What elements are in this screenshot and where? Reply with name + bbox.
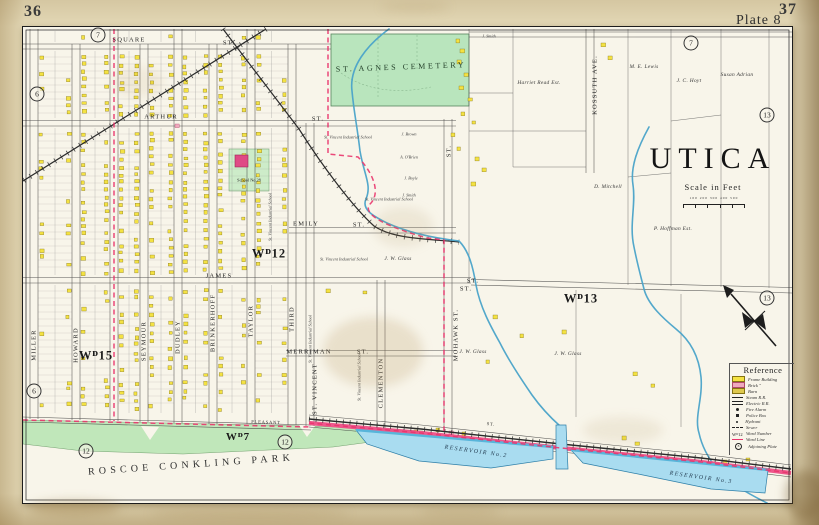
building xyxy=(256,189,259,193)
building xyxy=(218,193,222,196)
building xyxy=(40,254,43,258)
building xyxy=(256,102,260,105)
building xyxy=(82,231,86,235)
building xyxy=(475,157,479,161)
building xyxy=(169,391,172,394)
building xyxy=(282,79,286,83)
building xyxy=(39,133,42,136)
building xyxy=(242,217,245,220)
building xyxy=(149,155,153,158)
building xyxy=(468,98,472,101)
building xyxy=(218,153,222,156)
building xyxy=(135,64,139,68)
building xyxy=(67,289,71,292)
building xyxy=(169,104,172,107)
building xyxy=(219,139,223,143)
building xyxy=(257,150,262,153)
building xyxy=(169,171,173,175)
building xyxy=(184,365,188,369)
building xyxy=(169,205,173,208)
building xyxy=(66,159,70,163)
building xyxy=(81,218,85,221)
building xyxy=(150,365,153,368)
building xyxy=(67,382,72,385)
building xyxy=(81,357,85,360)
building xyxy=(183,381,187,384)
building xyxy=(135,336,139,340)
building xyxy=(184,356,187,360)
building xyxy=(242,299,246,302)
building xyxy=(149,64,153,67)
building xyxy=(242,258,246,262)
building xyxy=(81,257,86,261)
building xyxy=(184,229,187,232)
building xyxy=(204,331,207,335)
building xyxy=(257,212,260,215)
building xyxy=(183,172,186,175)
building xyxy=(219,373,223,377)
building xyxy=(66,232,70,235)
building xyxy=(67,387,70,390)
building xyxy=(105,232,108,235)
building xyxy=(119,174,123,177)
building xyxy=(218,187,222,190)
building xyxy=(105,141,108,145)
building xyxy=(119,105,123,108)
creek-east xyxy=(632,127,767,503)
building xyxy=(169,35,173,38)
building xyxy=(119,142,123,145)
map-linework xyxy=(23,27,792,503)
building xyxy=(242,266,246,270)
building xyxy=(40,232,44,235)
building xyxy=(119,296,123,299)
building xyxy=(184,203,188,206)
page-number-right: 37 xyxy=(779,1,797,19)
building xyxy=(169,238,172,241)
building xyxy=(459,86,464,90)
building xyxy=(134,245,138,248)
building xyxy=(219,63,222,66)
building xyxy=(119,112,123,116)
building xyxy=(134,353,138,356)
building xyxy=(451,133,455,137)
building xyxy=(282,102,285,105)
building xyxy=(150,132,153,136)
building xyxy=(135,260,139,263)
building xyxy=(169,382,172,385)
building xyxy=(283,358,287,362)
building xyxy=(135,359,138,362)
building xyxy=(203,132,206,135)
building xyxy=(204,142,208,146)
lot-lines xyxy=(38,31,288,413)
building xyxy=(283,381,286,385)
building xyxy=(218,409,221,412)
building xyxy=(204,194,209,198)
building xyxy=(150,106,154,110)
building xyxy=(219,70,223,73)
building xyxy=(82,55,86,58)
building xyxy=(81,395,84,399)
building xyxy=(283,189,287,193)
building xyxy=(203,89,207,92)
building xyxy=(184,252,188,256)
building xyxy=(134,313,138,316)
building xyxy=(105,55,108,58)
building xyxy=(134,213,138,216)
building xyxy=(40,56,44,59)
building xyxy=(135,295,138,299)
building xyxy=(183,260,188,264)
building xyxy=(204,210,207,214)
building xyxy=(134,400,138,403)
building xyxy=(168,197,172,200)
building xyxy=(119,179,123,183)
building xyxy=(105,262,109,265)
building xyxy=(257,341,261,344)
building xyxy=(119,64,123,68)
building xyxy=(242,192,246,196)
building xyxy=(242,108,246,112)
building xyxy=(282,342,286,345)
building xyxy=(257,222,261,225)
building xyxy=(219,179,223,183)
building xyxy=(219,86,223,89)
building xyxy=(150,271,155,275)
building xyxy=(256,311,260,314)
building xyxy=(104,70,108,74)
building xyxy=(184,269,188,273)
building xyxy=(256,262,260,265)
building xyxy=(135,173,138,176)
building xyxy=(169,297,172,300)
building xyxy=(168,366,172,370)
building xyxy=(257,107,261,110)
building xyxy=(184,220,188,223)
building xyxy=(120,344,124,347)
building xyxy=(81,330,85,333)
building xyxy=(82,133,86,136)
building xyxy=(150,205,154,209)
building xyxy=(651,384,655,387)
building xyxy=(119,251,122,254)
building xyxy=(104,203,108,207)
building xyxy=(169,132,173,136)
building xyxy=(81,181,84,185)
building xyxy=(242,185,245,188)
building xyxy=(135,203,140,206)
building xyxy=(184,88,188,92)
building xyxy=(241,199,245,202)
building xyxy=(105,240,109,243)
building xyxy=(82,102,87,105)
building xyxy=(241,233,245,236)
page-edge-stain xyxy=(420,505,500,519)
building xyxy=(150,374,153,377)
building xyxy=(135,269,139,273)
building xyxy=(184,245,188,248)
building xyxy=(184,106,188,109)
building xyxy=(241,364,244,368)
building xyxy=(82,307,87,311)
building xyxy=(66,97,71,101)
building xyxy=(635,442,640,445)
building xyxy=(256,255,259,258)
building xyxy=(204,180,208,183)
building xyxy=(283,93,286,97)
building xyxy=(120,368,124,371)
building xyxy=(119,335,123,339)
building xyxy=(242,85,246,89)
building xyxy=(119,383,123,387)
building xyxy=(105,300,109,303)
building xyxy=(134,392,137,395)
building xyxy=(184,181,187,184)
map-sheet: UTICA Scale in Feet 100 200 300 400 500 … xyxy=(22,26,793,504)
building xyxy=(257,63,261,66)
building xyxy=(256,199,260,203)
building xyxy=(105,196,108,199)
building xyxy=(204,219,208,223)
building xyxy=(242,36,246,39)
building xyxy=(184,390,187,394)
building xyxy=(135,105,139,108)
building xyxy=(257,158,261,161)
building xyxy=(81,225,85,228)
building xyxy=(204,187,209,190)
building xyxy=(67,111,70,114)
building xyxy=(82,403,87,406)
building xyxy=(203,268,206,271)
building xyxy=(105,219,109,222)
building xyxy=(168,347,172,350)
building xyxy=(218,133,222,136)
building xyxy=(204,245,208,248)
building xyxy=(82,109,87,113)
building xyxy=(150,339,154,342)
building xyxy=(203,298,207,301)
building xyxy=(183,97,186,100)
building xyxy=(82,77,86,81)
building xyxy=(104,188,108,191)
building xyxy=(135,327,138,330)
building xyxy=(134,196,138,200)
building xyxy=(184,314,188,318)
building xyxy=(134,290,138,294)
building xyxy=(135,407,139,411)
building xyxy=(219,357,223,360)
building xyxy=(120,55,124,58)
building xyxy=(135,383,139,386)
building xyxy=(119,320,123,324)
building xyxy=(105,210,109,213)
building xyxy=(81,70,84,74)
building xyxy=(204,114,208,118)
building xyxy=(471,182,476,186)
reservoir-3 xyxy=(571,450,768,493)
building xyxy=(219,241,223,244)
building xyxy=(219,390,222,394)
building xyxy=(464,73,468,77)
building xyxy=(168,64,172,67)
building xyxy=(168,55,172,59)
building xyxy=(150,357,154,360)
building xyxy=(204,237,209,240)
building xyxy=(149,238,153,242)
building xyxy=(219,232,222,235)
building xyxy=(168,114,172,117)
building xyxy=(66,104,70,107)
building xyxy=(120,82,124,85)
building xyxy=(40,249,44,253)
building xyxy=(40,176,43,179)
building xyxy=(135,55,139,59)
building xyxy=(256,132,260,135)
building xyxy=(40,223,44,226)
building xyxy=(256,36,261,40)
building xyxy=(135,253,139,256)
building xyxy=(82,85,86,88)
building xyxy=(562,330,566,334)
building xyxy=(219,94,223,98)
building xyxy=(283,205,286,209)
building xyxy=(40,404,43,407)
building xyxy=(283,229,287,233)
building xyxy=(104,180,108,184)
building xyxy=(135,81,138,84)
building xyxy=(204,405,207,408)
building xyxy=(241,94,245,97)
building xyxy=(105,108,109,111)
building xyxy=(134,238,137,241)
building xyxy=(283,148,287,151)
building xyxy=(257,55,261,58)
building xyxy=(363,291,367,294)
building xyxy=(134,72,138,76)
building xyxy=(256,399,260,402)
building xyxy=(169,271,173,274)
building xyxy=(169,73,173,76)
atlas-page: 36 37 Plate 8 xyxy=(0,0,819,525)
building xyxy=(105,395,109,398)
building xyxy=(460,49,465,53)
building xyxy=(456,39,460,43)
building xyxy=(134,342,138,345)
building xyxy=(39,72,43,76)
building xyxy=(149,404,153,408)
building xyxy=(457,60,461,64)
building xyxy=(105,403,108,407)
building xyxy=(257,204,260,207)
building xyxy=(105,85,109,88)
building xyxy=(150,255,155,258)
building xyxy=(486,360,489,364)
building xyxy=(219,364,223,368)
building xyxy=(204,381,207,385)
building xyxy=(119,188,122,191)
building xyxy=(149,171,153,174)
building xyxy=(67,402,72,406)
building xyxy=(120,245,124,248)
building xyxy=(67,132,71,135)
building xyxy=(218,225,222,228)
building xyxy=(119,203,123,206)
building xyxy=(219,209,223,212)
building xyxy=(204,170,207,173)
building xyxy=(633,372,637,376)
building xyxy=(119,71,123,74)
building xyxy=(135,187,139,190)
building xyxy=(149,73,152,76)
building xyxy=(169,181,173,185)
building xyxy=(120,150,125,154)
building xyxy=(183,72,187,75)
building xyxy=(105,102,109,105)
building xyxy=(282,198,286,201)
building xyxy=(135,133,139,136)
building xyxy=(169,255,173,258)
building xyxy=(104,291,107,295)
building xyxy=(105,386,109,389)
building xyxy=(81,272,85,276)
building xyxy=(219,289,223,292)
building xyxy=(241,140,245,143)
page-edge-stain xyxy=(380,2,450,12)
building xyxy=(150,190,154,193)
building xyxy=(184,163,188,167)
building xyxy=(242,324,246,328)
building xyxy=(40,332,44,336)
building xyxy=(204,96,207,99)
building xyxy=(282,373,287,376)
building xyxy=(82,211,86,214)
building xyxy=(242,133,247,136)
building xyxy=(257,181,261,184)
building xyxy=(257,305,261,309)
building xyxy=(67,224,71,227)
building xyxy=(150,323,154,327)
building xyxy=(601,43,606,47)
building xyxy=(135,89,139,93)
building xyxy=(150,138,154,142)
building xyxy=(150,163,154,166)
building xyxy=(204,228,208,231)
building xyxy=(66,200,69,204)
building xyxy=(81,164,85,167)
building xyxy=(204,289,208,292)
building xyxy=(169,247,173,250)
building xyxy=(257,229,262,233)
building xyxy=(135,150,140,153)
building xyxy=(242,241,246,245)
building xyxy=(218,161,222,165)
page-edge-stain xyxy=(150,508,350,520)
building xyxy=(184,157,188,160)
building xyxy=(168,263,172,266)
building xyxy=(149,313,153,317)
building xyxy=(81,149,85,152)
building xyxy=(120,87,125,91)
building xyxy=(218,101,222,104)
building xyxy=(461,112,465,116)
building xyxy=(168,398,171,401)
building xyxy=(120,166,124,169)
building xyxy=(120,391,125,394)
building xyxy=(218,169,222,173)
building xyxy=(135,167,139,170)
building xyxy=(135,180,140,183)
